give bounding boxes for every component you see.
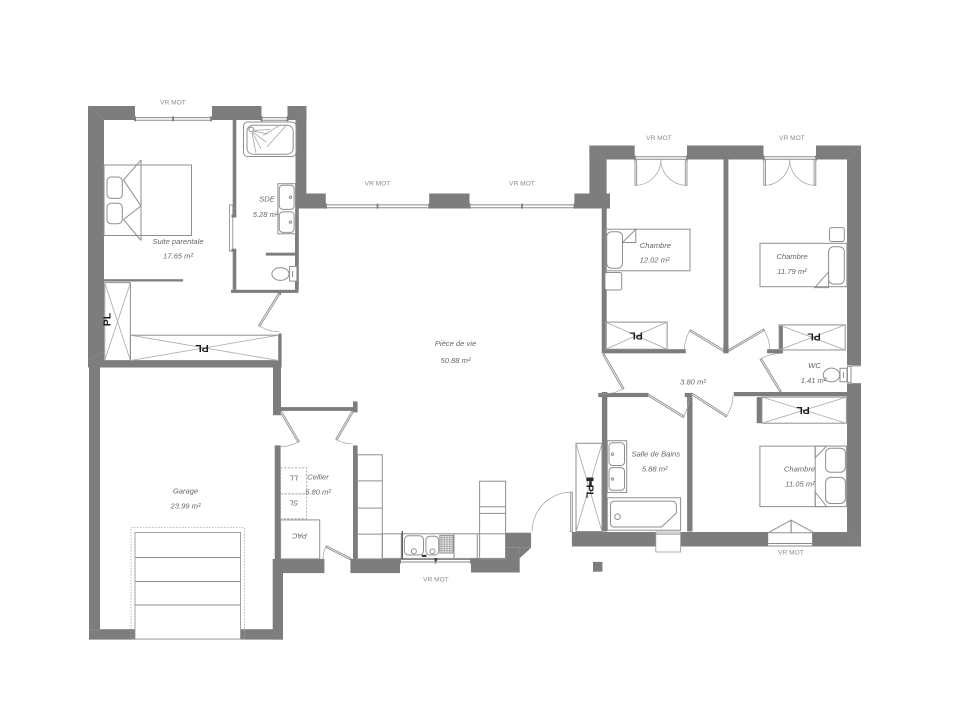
svg-text:1.41 m²: 1.41 m² [801,376,827,385]
svg-text:Chambre: Chambre [784,465,815,474]
svg-text:Garage: Garage [173,487,198,496]
svg-text:PL: PL [584,485,596,499]
svg-text:5.80 m²: 5.80 m² [305,488,331,497]
svg-text:SDE: SDE [259,195,276,204]
svg-text:VR MOT: VR MOT [509,181,535,188]
svg-text:Chambre: Chambre [776,252,807,261]
svg-text:PAC: PAC [291,531,307,540]
svg-text:SL: SL [289,498,298,507]
svg-text:11.05 m²: 11.05 m² [785,480,815,489]
svg-text:PL: PL [807,331,821,343]
svg-text:Salle de Bains: Salle de Bains [632,450,681,459]
svg-text:PL: PL [102,312,114,326]
svg-text:VR MOT: VR MOT [365,181,391,188]
svg-text:Cellier: Cellier [307,473,329,482]
svg-text:5.28 m²: 5.28 m² [253,210,279,219]
svg-text:VR MOT: VR MOT [779,135,805,142]
svg-text:VR MOT: VR MOT [646,135,672,142]
svg-text:17.65 m²: 17.65 m² [163,252,193,261]
svg-text:LL: LL [289,473,297,482]
svg-text:23.99 m²: 23.99 m² [170,502,201,511]
svg-text:VR MOT: VR MOT [778,550,804,557]
svg-text:PL: PL [629,330,643,342]
svg-text:WC: WC [808,361,821,370]
svg-text:12.02 m²: 12.02 m² [640,256,670,265]
svg-text:VR MOT: VR MOT [160,100,186,107]
svg-text:3.80 m²: 3.80 m² [680,378,706,387]
svg-text:50.88 m²: 50.88 m² [441,356,471,365]
svg-text:Chambre: Chambre [640,241,671,250]
svg-text:PL: PL [796,404,810,416]
svg-text:11.79 m²: 11.79 m² [777,267,807,276]
svg-text:Pièce de vie: Pièce de vie [435,339,476,348]
svg-text:5.88 m²: 5.88 m² [642,465,668,474]
svg-text:PL: PL [195,342,209,354]
svg-text:VR MOT: VR MOT [423,577,449,584]
svg-text:Suite parentale: Suite parentale [152,237,203,246]
